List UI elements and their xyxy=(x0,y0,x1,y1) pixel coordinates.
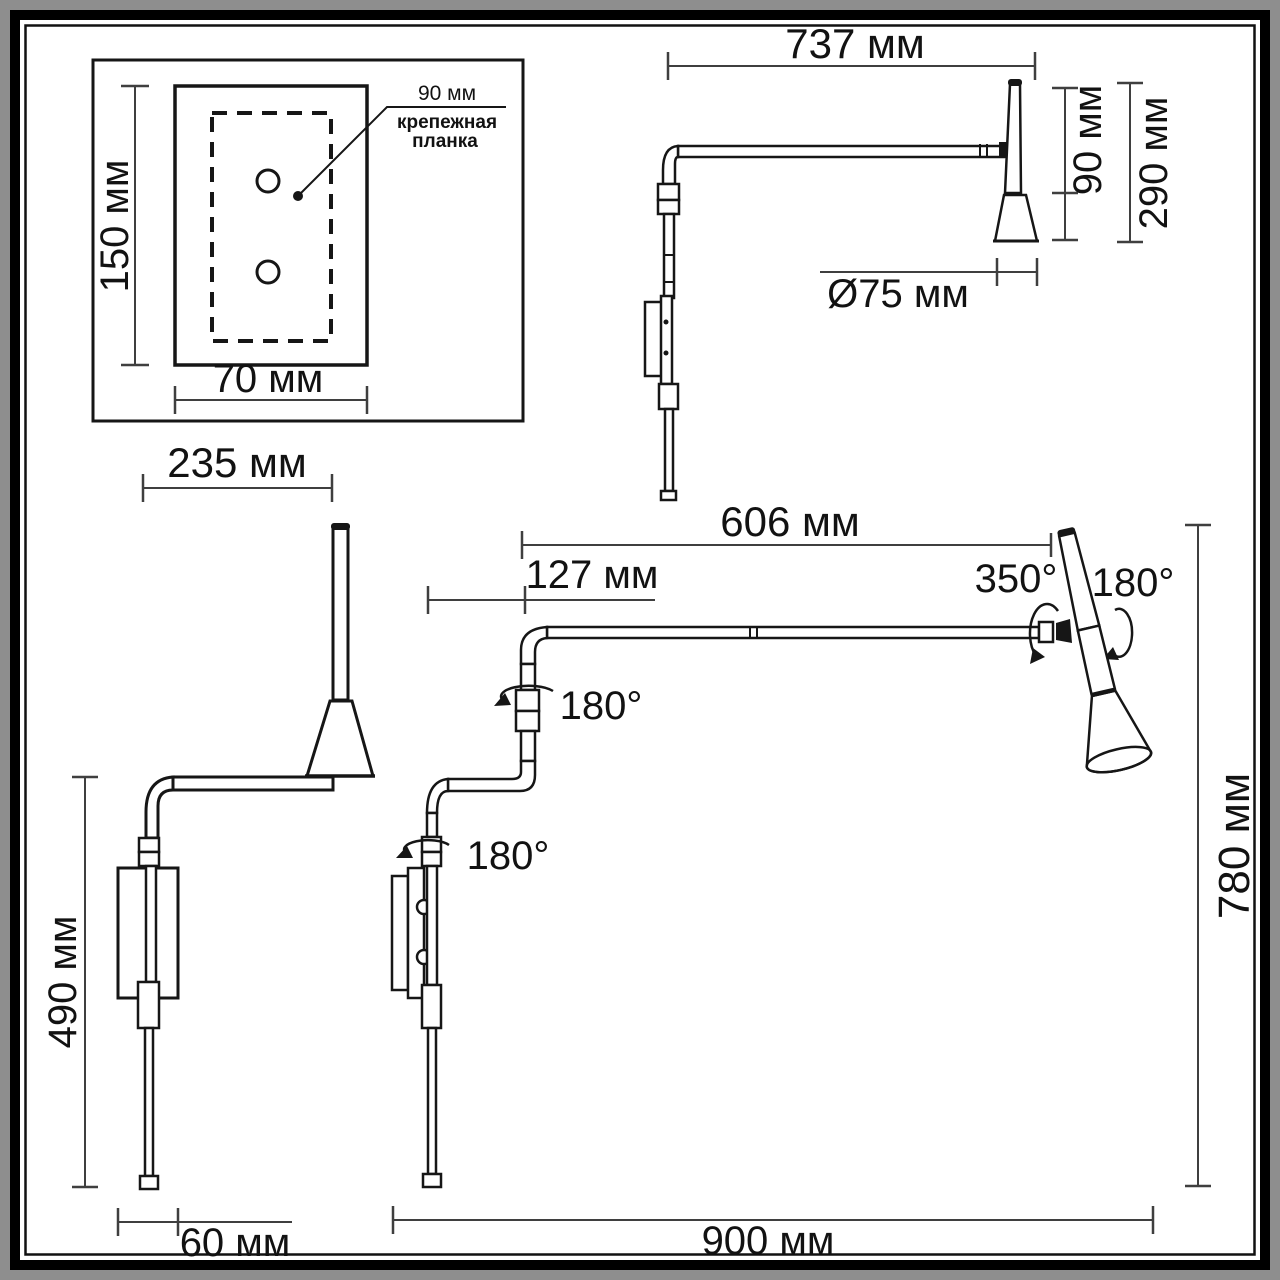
folded-base-label: 60 мм xyxy=(180,1221,291,1265)
folded-arm-tube xyxy=(173,777,333,790)
base-swivel-label: 180° xyxy=(467,834,550,878)
mid-swivel-collar xyxy=(516,690,539,711)
mount-plate-inset: 90 мм крепежная планка 150 мм 70 мм xyxy=(93,60,523,421)
side-rod-cap xyxy=(661,491,676,500)
side-wall-plate xyxy=(645,302,662,376)
drawing-canvas: 90 мм крепежная планка 150 мм 70 мм 737 … xyxy=(0,0,1280,1280)
head-tilt-label: 180° xyxy=(1092,561,1175,605)
folded-rod-cap xyxy=(140,1176,158,1189)
shade-height-label: 90 мм xyxy=(1066,85,1110,196)
side-arm-label: 737 мм xyxy=(785,20,925,67)
screw-hole-bottom xyxy=(257,261,279,283)
extended-rod-cap xyxy=(423,1174,441,1187)
folded-head-stem xyxy=(333,527,348,700)
backplate-outline xyxy=(175,86,367,365)
extended-reach-label: 900 мм xyxy=(702,1219,835,1263)
strip-caption-line2: планка xyxy=(412,131,478,152)
head-height-label: 290 мм xyxy=(1132,97,1176,230)
extended-long-arm xyxy=(547,627,1039,638)
shade-diameter-label: Ø75 мм xyxy=(827,272,969,316)
folded-head-cap xyxy=(331,523,350,530)
extended-wall-plate-back xyxy=(392,876,408,990)
extended-rod xyxy=(427,866,437,985)
extended-arm-label: 606 мм xyxy=(720,498,860,545)
folded-arm-label: 235 мм xyxy=(167,439,307,486)
head-rotation-label: 350° xyxy=(975,557,1058,601)
folded-rod xyxy=(146,866,156,982)
folded-height-label: 490 мм xyxy=(41,916,85,1049)
plate-width-label: 70 мм xyxy=(213,357,324,401)
side-arm-tube xyxy=(678,146,1004,157)
extended-offset-label: 127 мм xyxy=(526,553,659,597)
strip-width-label: 90 мм xyxy=(418,82,476,105)
strip-caption-line1: крепежная xyxy=(397,112,497,133)
lamp-dimension-drawing: 90 мм крепежная планка 150 мм 70 мм 737 … xyxy=(0,0,1280,1280)
side-head-cap xyxy=(1008,79,1022,86)
arm-end-cylinder xyxy=(1039,622,1053,642)
extended-wall-plate-front xyxy=(408,868,424,998)
extended-height-label: 780 мм xyxy=(1210,773,1259,919)
head-joint-knob xyxy=(1056,619,1072,643)
plate-height-label: 150 мм xyxy=(93,160,137,293)
mid-swivel-label: 180° xyxy=(560,684,643,728)
screw-hole-top xyxy=(257,170,279,192)
